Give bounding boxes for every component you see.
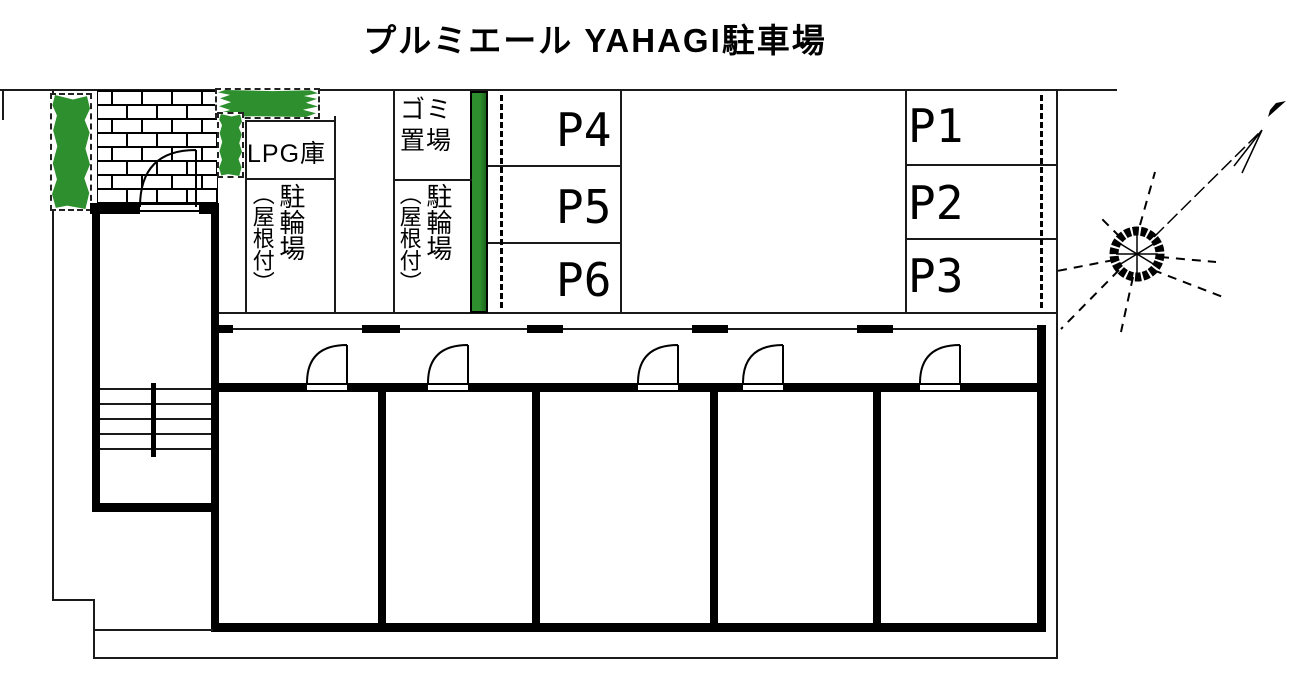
bicycle-parking-west-label: （屋根付） 駐輪場: [250, 183, 305, 293]
p456-stall-dashed-line: [500, 95, 503, 308]
boundary-top-line: [0, 89, 1117, 91]
door-opening-unit-4: [743, 383, 783, 392]
boundary-right-line: [1056, 89, 1058, 659]
page-title: プルミエール YAHAGI駐車場: [0, 14, 1190, 62]
center-enclosure-left-line: [393, 89, 395, 314]
fence-post: [857, 325, 893, 333]
garbage-label-line1: ゴミ: [400, 95, 452, 126]
bicycle-parking-center-label: （屋根付） 駐輪場: [397, 183, 452, 293]
parking-band-bottom-line: [215, 312, 1056, 314]
wall-unit-divider-1: [378, 392, 386, 623]
lpg-storage-label: LPG庫: [247, 139, 326, 170]
door-opening-unit-3: [638, 383, 678, 392]
boundary-top-stub: [2, 89, 4, 120]
wall-stairwell-west: [92, 203, 100, 512]
west-enclosure-divider: [245, 178, 336, 180]
aisle-left-line: [620, 89, 622, 314]
door-opening-unit-5: [920, 383, 960, 392]
wall-stairwell-south: [92, 503, 217, 512]
p2-p3-divider: [905, 238, 1056, 240]
parking-space-p2: P2: [908, 180, 963, 226]
door-opening-unit-1: [307, 383, 347, 392]
fence-post: [692, 325, 728, 333]
fence-post: [527, 325, 563, 333]
wall-building-west: [211, 203, 219, 632]
west-enclosure-right-line: [334, 116, 336, 314]
hedge-strip: [470, 91, 488, 313]
parking-space-p1: P1: [908, 103, 963, 149]
compass-rose-icon: [1020, 80, 1305, 355]
wall-unit-divider-4: [873, 392, 881, 623]
brick-paving: [97, 90, 218, 204]
pavement-edge-line: [95, 629, 213, 631]
p1-p2-divider: [905, 164, 1056, 166]
p5-p6-divider: [470, 242, 620, 244]
bicycle-parking-main-label: 駐輪場: [424, 183, 452, 293]
boundary-step-line: [52, 599, 95, 601]
garbage-area-label: ゴミ 置場: [400, 95, 452, 157]
parking-space-p5: P5: [556, 184, 611, 230]
garbage-label-line2: 置場: [400, 126, 452, 157]
lpg-box-top-line: [245, 120, 335, 122]
gate-opening: [140, 203, 199, 212]
north-arrow-icon: [1268, 101, 1286, 117]
wall-building-south: [211, 623, 1046, 632]
bicycle-parking-sub-label: （屋根付）: [397, 183, 421, 293]
site-plan: プルミエール YAHAGI駐車場 P1 P2 P3 P4 P5 P6: [0, 0, 1305, 685]
planting-strip-west: [50, 93, 92, 211]
west-enclosure-left-line: [245, 178, 247, 314]
compass-ring: [1114, 231, 1160, 277]
compass-north-ray: [1154, 130, 1262, 237]
parking-space-p6: P6: [556, 257, 611, 303]
parking-space-p3: P3: [908, 253, 963, 299]
p4-p5-divider: [470, 165, 620, 167]
wall-unit-divider-2: [532, 392, 540, 623]
door-opening-unit-2: [428, 383, 468, 392]
fence-post: [362, 325, 400, 333]
planting-strip-lpg-side: [217, 112, 244, 178]
compass-rays: [1057, 172, 1223, 332]
wall-building-east: [1037, 325, 1046, 632]
boundary-bottom-line: [93, 657, 1058, 659]
wall-unit-divider-3: [710, 392, 718, 623]
bicycle-parking-main-label: 駐輪場: [277, 183, 305, 293]
stair-handrail: [151, 383, 156, 457]
center-enclosure-divider: [393, 179, 472, 181]
compass-spokes: [1116, 233, 1158, 275]
planting-fill: [52, 95, 90, 209]
planting-fill: [219, 114, 242, 176]
bicycle-parking-sub-label: （屋根付）: [250, 183, 274, 293]
parking-space-p4: P4: [556, 107, 611, 153]
fence-line: [217, 328, 1041, 330]
p123-stall-dashed-line: [1040, 95, 1043, 308]
gate-swing-icon: [140, 150, 196, 207]
aisle-right-line: [905, 89, 907, 314]
door-swing-overlay: [0, 0, 1305, 685]
